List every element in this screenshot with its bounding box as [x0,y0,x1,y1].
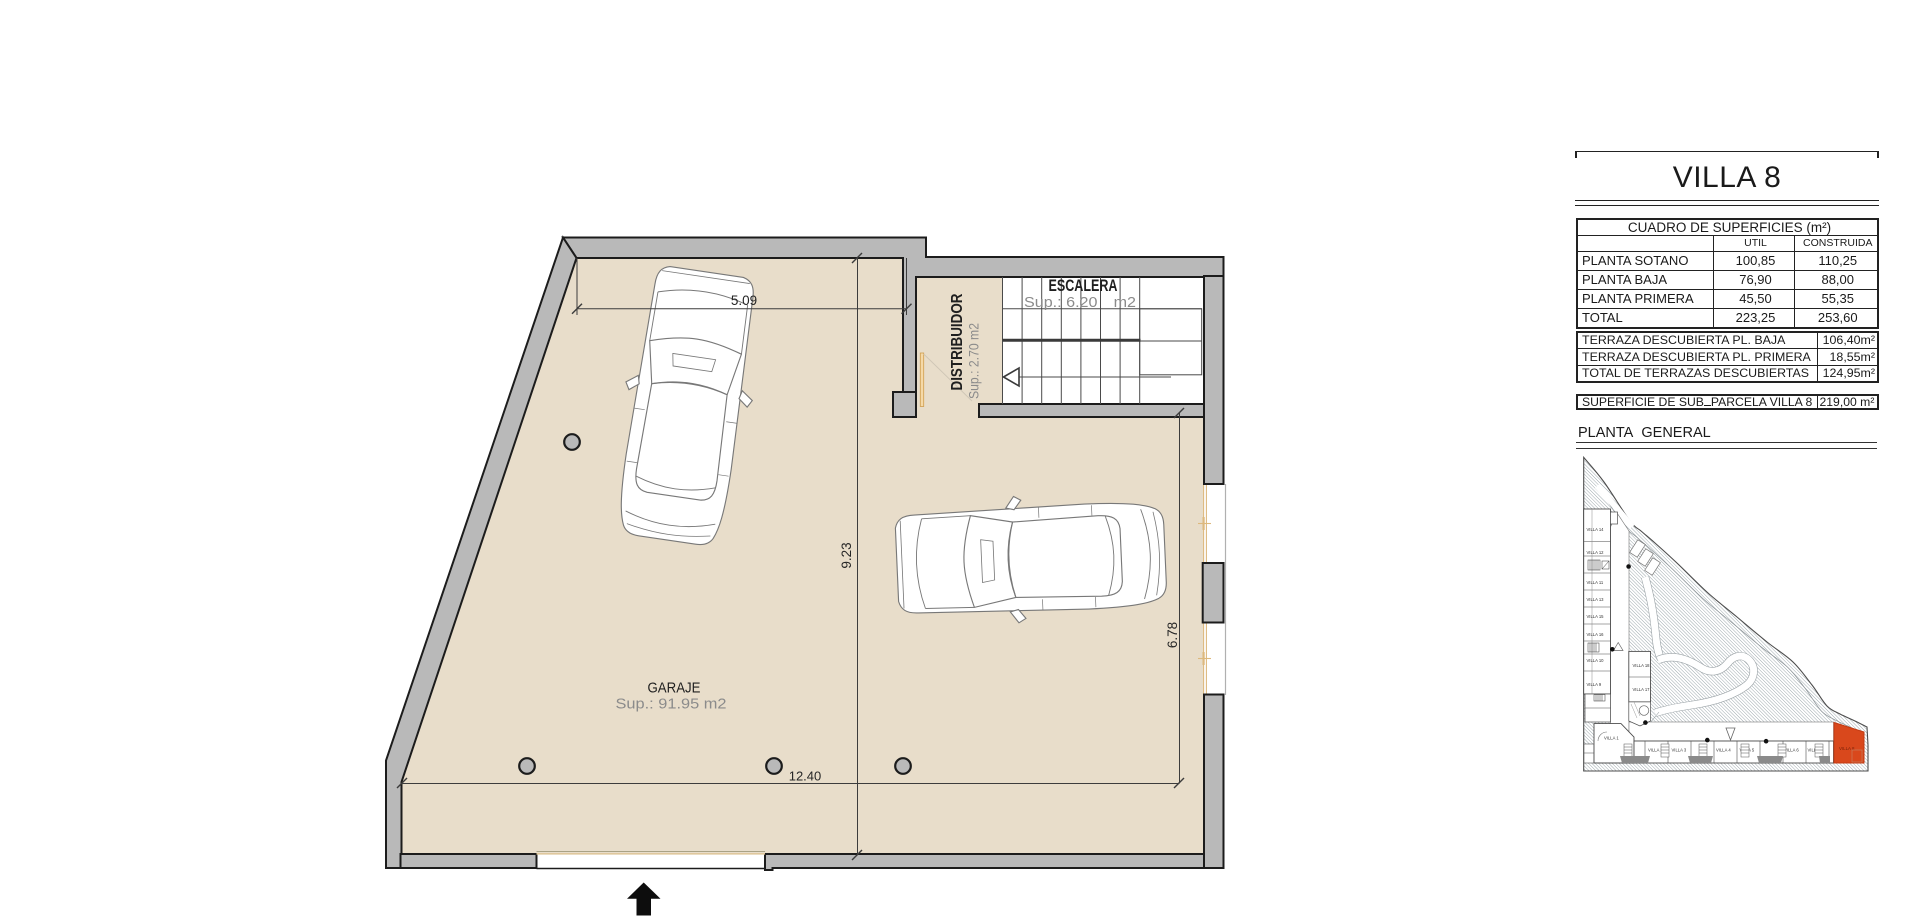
svg-text:VILLA 11: VILLA 11 [1587,580,1604,585]
svg-text:VILLA 18: VILLA 18 [1633,663,1651,668]
svg-text:VILLA 4: VILLA 4 [1716,748,1731,753]
svg-text:VILLA 9: VILLA 9 [1587,682,1602,687]
svg-text:VILLA 15: VILLA 15 [1587,614,1605,619]
svg-text:DISTRIBUIDOR: DISTRIBUIDOR [949,294,966,391]
svg-text:12.40: 12.40 [789,769,822,784]
svg-text:Sup.: 2.70 m2: Sup.: 2.70 m2 [966,323,982,399]
svg-text:VILLA 13: VILLA 13 [1587,597,1605,602]
svg-text:VILLA 3: VILLA 3 [1672,748,1687,753]
svg-text:Sup.: 91.95 m2: Sup.: 91.95 m2 [616,697,727,713]
svg-text:VILLA 17: VILLA 17 [1633,687,1651,692]
svg-text:ESCALERA: ESCALERA [1049,277,1118,295]
svg-text:VILLA 14: VILLA 14 [1587,527,1605,532]
svg-text:Sup.: 6.20 m2: Sup.: 6.20 m2 [1024,295,1136,311]
svg-text:VILLA 16: VILLA 16 [1587,632,1605,637]
svg-text:VILLA 12: VILLA 12 [1587,550,1605,555]
svg-text:9.23: 9.23 [839,542,854,568]
svg-text:5.09: 5.09 [731,293,757,308]
svg-text:VILLA 6: VILLA 6 [1784,748,1799,753]
svg-text:VILLA 1: VILLA 1 [1604,736,1619,741]
svg-text:VILLA 10: VILLA 10 [1587,658,1605,663]
svg-text:6.78: 6.78 [1165,622,1180,648]
svg-text:GARAJE: GARAJE [648,680,701,697]
